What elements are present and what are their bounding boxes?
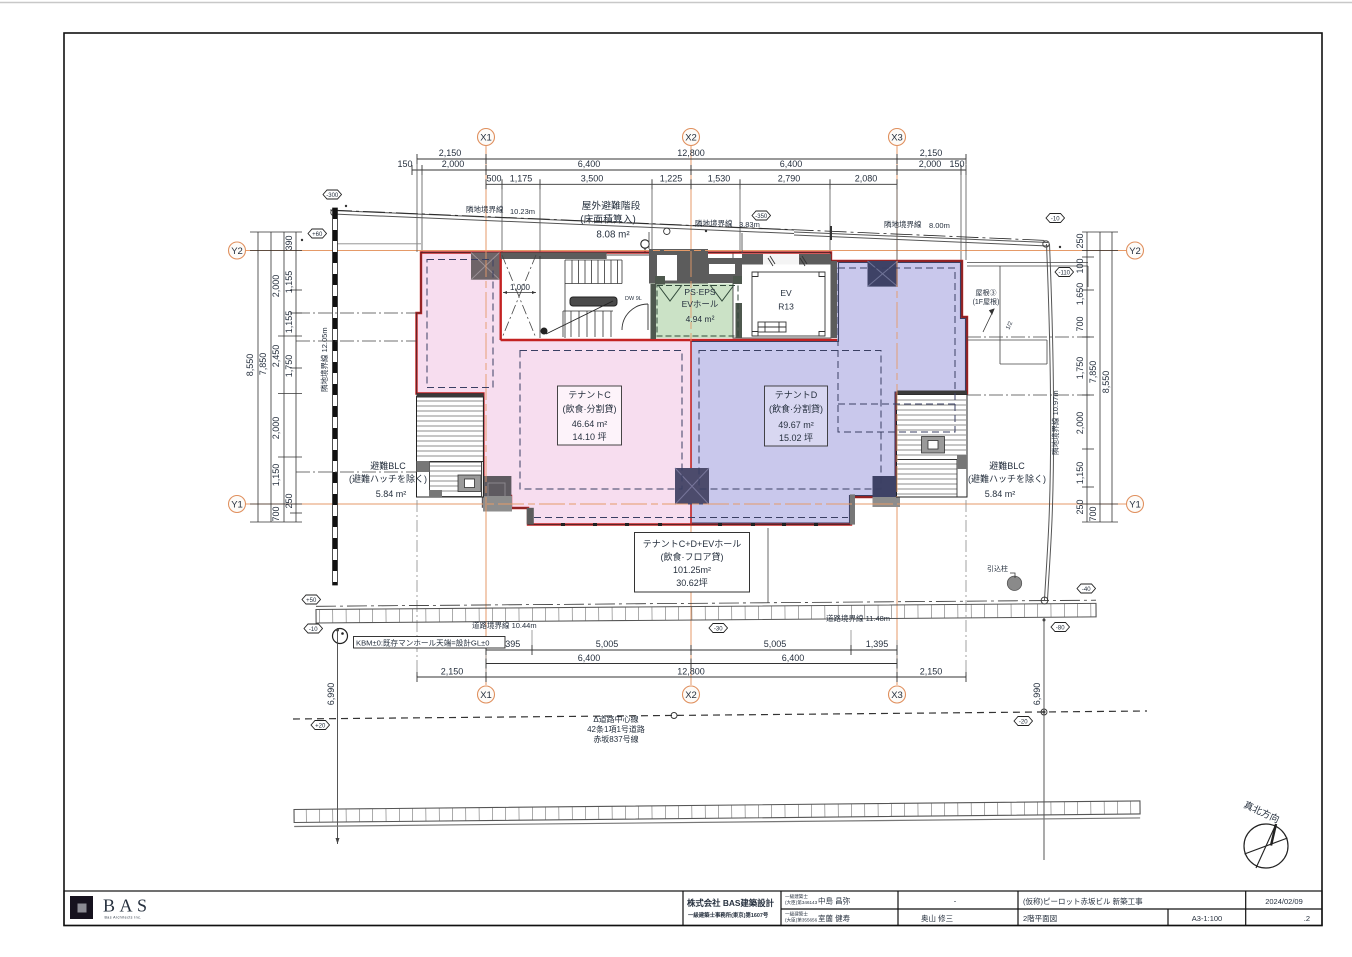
svg-text:14.10 坪: 14.10 坪 [572, 432, 606, 442]
svg-text:X3: X3 [891, 133, 903, 144]
svg-text:Y2: Y2 [1129, 246, 1141, 257]
svg-text:2,000: 2,000 [271, 275, 281, 298]
svg-text:KBM±0:既存マンホール天端=設計GL±0: KBM±0:既存マンホール天端=設計GL±0 [356, 637, 489, 647]
svg-text:10.23m: 10.23m [510, 207, 535, 216]
svg-text:1,150: 1,150 [271, 464, 281, 487]
svg-text:5.84 m²: 5.84 m² [376, 489, 407, 499]
svg-text:(大臣)第355656: (大臣)第355656 [785, 917, 818, 924]
svg-text:株式会社 BAS建築設計: 株式会社 BAS建築設計 [687, 898, 775, 908]
svg-text:2,790: 2,790 [778, 174, 801, 184]
svg-text:-10: -10 [1051, 217, 1060, 223]
svg-text:5.84 m²: 5.84 m² [985, 489, 1016, 499]
svg-text:1,000: 1,000 [510, 283, 531, 292]
svg-text:Y1: Y1 [1129, 500, 1141, 511]
svg-text:赤坂837号線: 赤坂837号線 [593, 734, 638, 744]
svg-text:1,395: 1,395 [866, 639, 889, 649]
svg-text:屋外避難階段: 屋外避難階段 [582, 199, 641, 212]
svg-text:X2: X2 [685, 690, 697, 701]
svg-text:+60: +60 [312, 232, 323, 238]
svg-text:101.25m²: 101.25m² [673, 565, 711, 575]
svg-text:6,400: 6,400 [578, 159, 601, 169]
svg-text:隣地境界線: 隣地境界線 [884, 219, 922, 229]
svg-text:1,750: 1,750 [1075, 357, 1085, 380]
svg-text:(1F屋根): (1F屋根) [973, 297, 1000, 306]
svg-text:-30: -30 [714, 627, 723, 633]
svg-text:テナントD: テナントD [775, 390, 818, 400]
svg-text:X2: X2 [685, 133, 697, 144]
svg-text:2,450: 2,450 [271, 345, 281, 368]
svg-text:2,080: 2,080 [855, 174, 878, 184]
svg-text:150: 150 [397, 159, 412, 169]
svg-text:2,000: 2,000 [271, 417, 281, 440]
svg-text:隣地境界線: 隣地境界線 [466, 204, 504, 214]
svg-text:道路境界線 11.48m: 道路境界線 11.48m [826, 613, 890, 623]
svg-text:5,005: 5,005 [764, 639, 787, 649]
svg-text:2,150: 2,150 [441, 667, 464, 677]
svg-text:42条1項1号道路: 42条1項1号道路 [587, 724, 645, 734]
svg-text:屋根③: 屋根③ [976, 288, 997, 297]
svg-text:12,800: 12,800 [677, 148, 705, 158]
svg-text:.2: .2 [1304, 914, 1310, 923]
svg-text:6,400: 6,400 [578, 653, 601, 663]
svg-text:1,650: 1,650 [1075, 283, 1085, 306]
svg-text:100: 100 [1075, 258, 1085, 273]
svg-text:6,990: 6,990 [326, 683, 336, 706]
svg-text:2,000: 2,000 [442, 159, 465, 169]
svg-text:-40: -40 [1082, 587, 1091, 593]
svg-text:250: 250 [1075, 499, 1085, 514]
svg-text:7,850: 7,850 [1088, 361, 1098, 384]
svg-text:Δ道路中心線: Δ道路中心線 [593, 714, 638, 724]
svg-text:2,150: 2,150 [439, 148, 462, 158]
svg-text:49.67 m²: 49.67 m² [778, 420, 814, 430]
svg-text:一級建築士事務所(東京)第1607号: 一級建築士事務所(東京)第1607号 [688, 911, 769, 919]
svg-text:テナントC+D+EVホール: テナントC+D+EVホール [643, 539, 742, 549]
svg-text:BAS: BAS [103, 896, 152, 916]
svg-text:(仮称)ピーロット赤坂ビル 新築工事: (仮称)ピーロット赤坂ビル 新築工事 [1023, 896, 1143, 906]
svg-text:隣地境界線 10.97m: 隣地境界線 10.97m [1050, 390, 1060, 455]
svg-text:2,150: 2,150 [920, 667, 943, 677]
svg-text:8.08 m²: 8.08 m² [596, 230, 630, 241]
svg-text:避難BLC: 避難BLC [989, 460, 1025, 471]
svg-text:DW 9L: DW 9L [625, 296, 642, 302]
svg-text:1,530: 1,530 [708, 174, 731, 184]
svg-text:5,005: 5,005 [596, 639, 619, 649]
svg-text:1,155: 1,155 [284, 311, 294, 334]
svg-text:250: 250 [1075, 233, 1085, 248]
svg-text:3.83m: 3.83m [739, 220, 760, 229]
svg-text:8,550: 8,550 [1101, 371, 1111, 394]
svg-text:中島 昌弥: 中島 昌弥 [818, 896, 851, 906]
svg-text:1,225: 1,225 [660, 174, 683, 184]
svg-text:4.94 m²: 4.94 m² [686, 314, 715, 324]
svg-text:2024/02/09: 2024/02/09 [1265, 897, 1303, 906]
svg-text:3,500: 3,500 [581, 174, 604, 184]
svg-text:-300: -300 [326, 193, 339, 199]
svg-text:6,400: 6,400 [780, 159, 803, 169]
svg-text:12,800: 12,800 [677, 667, 705, 677]
svg-text:-10: -10 [309, 627, 318, 633]
svg-text:30.62坪: 30.62坪 [676, 578, 708, 588]
svg-text:EVホール: EVホール [682, 299, 719, 309]
svg-text:室薗 健寿: 室薗 健寿 [818, 913, 851, 923]
svg-text:EV: EV [780, 288, 792, 298]
svg-text:150: 150 [949, 159, 964, 169]
svg-text:-80: -80 [1056, 626, 1065, 632]
svg-text:テナントC: テナントC [568, 390, 611, 400]
svg-text:引込柱: 引込柱 [987, 564, 1008, 573]
svg-text:X1: X1 [480, 690, 492, 701]
svg-text:奥山 修三: 奥山 修三 [921, 913, 953, 923]
svg-text:250: 250 [284, 493, 294, 508]
svg-text:+20: +20 [315, 724, 326, 730]
svg-text:(避難ハッチを除く): (避難ハッチを除く) [349, 473, 427, 484]
svg-text:-20: -20 [1019, 720, 1028, 726]
svg-text:(飲食·フロア貸): (飲食·フロア貸) [661, 551, 724, 562]
svg-text:隣地境界線: 隣地境界線 [695, 218, 733, 228]
svg-text:8.00m: 8.00m [929, 221, 950, 230]
svg-text:道路境界線 10.44m: 道路境界線 10.44m [472, 620, 537, 630]
svg-text:390: 390 [284, 235, 294, 250]
svg-text:2階平面図: 2階平面図 [1023, 913, 1057, 923]
svg-text:15.02 坪: 15.02 坪 [779, 433, 813, 443]
svg-text:700: 700 [271, 506, 281, 521]
svg-text:Bas Architects Inc.: Bas Architects Inc. [105, 916, 142, 920]
svg-text:避難BLC: 避難BLC [370, 460, 406, 471]
svg-text:(避難ハッチを除く): (避難ハッチを除く) [968, 473, 1046, 484]
svg-text:7,850: 7,850 [258, 353, 268, 376]
svg-text:(床面積算入): (床面積算入) [580, 213, 636, 226]
svg-text:一級建築士: 一級建築士 [785, 911, 808, 918]
svg-text:R13: R13 [778, 302, 794, 312]
svg-text:(飲食·分割貸): (飲食·分割貸) [769, 403, 823, 414]
svg-text:A3-1:100: A3-1:100 [1192, 914, 1222, 923]
svg-text:隣地境界線 12.05m: 隣地境界線 12.05m [319, 327, 329, 392]
svg-text:1,175: 1,175 [510, 174, 533, 184]
svg-text:6,400: 6,400 [782, 653, 805, 663]
svg-text:-110: -110 [1058, 271, 1070, 277]
svg-text:700: 700 [1075, 316, 1085, 331]
svg-text:500: 500 [486, 174, 501, 184]
svg-text:Y1: Y1 [231, 500, 243, 511]
svg-text:-350: -350 [755, 214, 768, 220]
svg-text:PS·EPS: PS·EPS [684, 287, 716, 297]
svg-text:8,550: 8,550 [245, 354, 255, 377]
svg-text:(飲食·分割貸): (飲食·分割貸) [563, 403, 617, 414]
svg-text:+50: +50 [306, 598, 317, 604]
svg-text:46.64 m²: 46.64 m² [572, 419, 608, 429]
svg-text:1,155: 1,155 [284, 271, 294, 294]
svg-text:2,000: 2,000 [1075, 412, 1085, 435]
svg-text:X1: X1 [480, 133, 492, 144]
svg-text:(大臣)第346143: (大臣)第346143 [785, 899, 818, 906]
svg-text:6,990: 6,990 [1032, 683, 1042, 706]
svg-text:2,000: 2,000 [919, 159, 942, 169]
svg-text:700: 700 [1088, 506, 1098, 521]
svg-text:Y2: Y2 [231, 246, 243, 257]
svg-text:2,150: 2,150 [920, 148, 943, 158]
svg-text:1,750: 1,750 [284, 355, 294, 378]
svg-text:X3: X3 [891, 690, 903, 701]
svg-text:1,150: 1,150 [1075, 462, 1085, 485]
svg-text:一級建築士: 一級建築士 [785, 893, 808, 900]
